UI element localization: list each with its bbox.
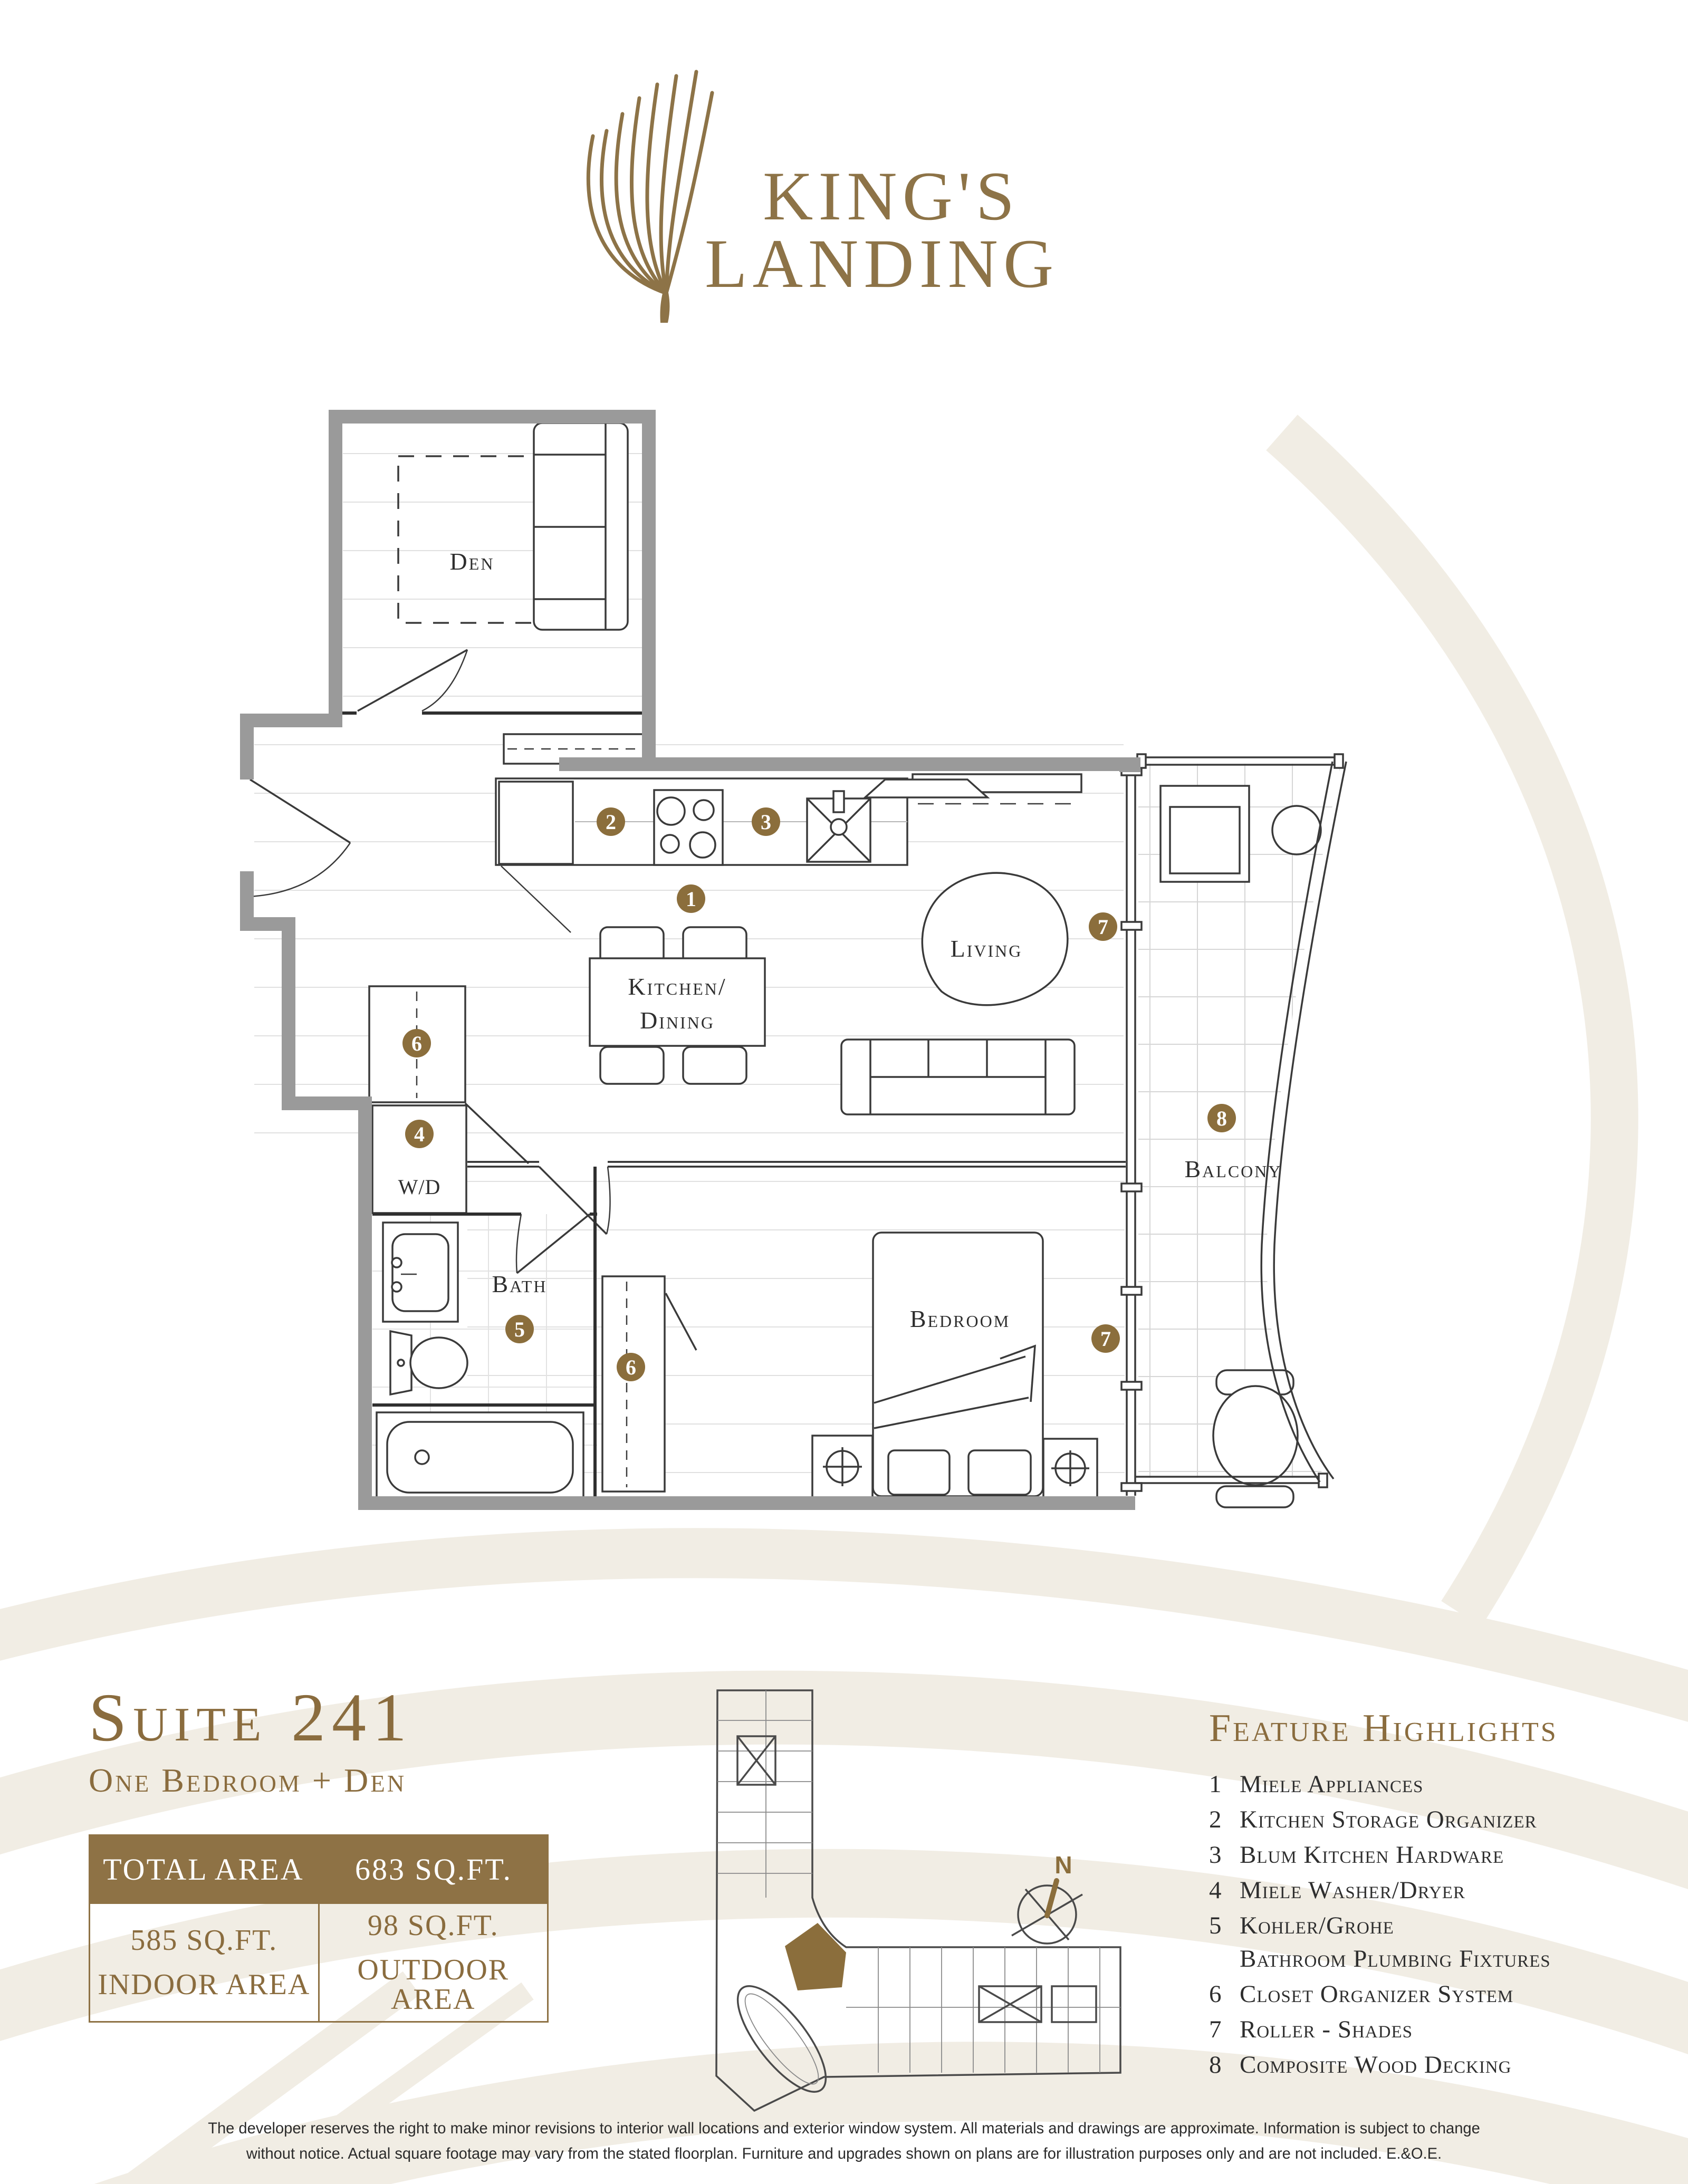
feature-item-number: 3	[1209, 1843, 1240, 1868]
feature-item-number: 6	[1209, 1982, 1240, 2007]
total-area-value: 683 SQ.FT.	[319, 1852, 549, 1887]
balcony-lounge-chair	[1160, 786, 1249, 882]
room-label-balcony: Balcony	[1184, 1156, 1282, 1182]
marker-4-number: 4	[414, 1122, 425, 1146]
nightstand-left	[812, 1436, 872, 1498]
feather-frond-icon	[588, 72, 712, 323]
bed	[873, 1233, 1043, 1496]
bathtub	[377, 1412, 583, 1502]
area-table-body: 585 SQ.FT. INDOOR AREA 98 SQ.FT. OUTDOOR…	[89, 1904, 549, 2023]
feature-item-5: 5Kohler/Grohe	[1209, 1913, 1679, 1938]
feature-item-number: 7	[1209, 2017, 1240, 2042]
feature-item-6: 6Closet Organizer System	[1209, 1982, 1679, 2007]
marker-6-bedroom: 6	[617, 1353, 645, 1381]
feature-item-number-spacer	[1209, 1947, 1240, 1971]
marker-6-closet: 6	[402, 1029, 431, 1057]
indoor-area-cell: 585 SQ.FT. INDOOR AREA	[90, 1904, 320, 2021]
marker-1-number: 1	[686, 887, 696, 911]
area-table-header: TOTAL AREA 683 SQ.FT.	[89, 1834, 549, 1904]
total-area-label: TOTAL AREA	[89, 1852, 319, 1887]
feature-item-2: 2Kitchen Storage Organizer	[1209, 1807, 1679, 1832]
balcony-chaise	[1213, 1370, 1298, 1507]
bath-vanity-sink	[383, 1223, 458, 1322]
outdoor-area-label: OUTDOOR AREA	[320, 1955, 548, 2014]
den-sofa	[534, 423, 628, 630]
feature-item-number: 1	[1209, 1772, 1240, 1797]
compass-north-label: N	[1054, 1851, 1072, 1879]
marker-5: 5	[505, 1315, 534, 1343]
marker-6-closet-number: 6	[411, 1032, 422, 1055]
feature-item-8: 8Composite Wood Decking	[1209, 2053, 1679, 2077]
indoor-area-value: 585 SQ.FT.	[90, 1926, 318, 1955]
marker-1: 1	[677, 884, 705, 913]
marker-4: 4	[405, 1120, 434, 1148]
marker-3-number: 3	[761, 810, 771, 834]
feature-item-4: 4Miele Washer/Dryer	[1209, 1878, 1679, 1903]
suite-subtitle: One Bedroom + Den	[89, 1764, 555, 1797]
marker-8-number: 8	[1216, 1107, 1227, 1130]
feature-item-label: Bathroom Plumbing Fixtures	[1240, 1947, 1551, 1971]
balcony-round-table	[1272, 806, 1321, 854]
floorplan-brochure-page: { "colors": { "gold": "#8b6e3c", "gold_t…	[0, 0, 1688, 2184]
feature-item-number: 5	[1209, 1913, 1240, 1938]
suite-info-panel: Suite 241 One Bedroom + Den TOTAL AREA 6…	[89, 1683, 555, 2023]
disclaimer-line1: The developer reserves the right to make…	[25, 2116, 1663, 2141]
feature-item-5-line2: Bathroom Plumbing Fixtures	[1209, 1947, 1679, 1971]
room-label-den: Den	[450, 548, 495, 575]
marker-7-living-number: 7	[1098, 915, 1108, 939]
floor-plan: 1 2 3 4 5 6 6 7 7 8 Den Kitchen/ Dining …	[240, 406, 1346, 1514]
feature-item-label: Kohler/Grohe	[1240, 1913, 1394, 1938]
suite-title: Suite 241	[89, 1683, 555, 1752]
room-label-living: Living	[951, 935, 1023, 962]
feature-item-number: 4	[1209, 1878, 1240, 1903]
marker-6-bedroom-number: 6	[626, 1355, 636, 1379]
feature-item-label: Blum Kitchen Hardware	[1240, 1843, 1504, 1868]
marker-5-number: 5	[514, 1317, 525, 1341]
marker-7-bedroom: 7	[1091, 1324, 1120, 1353]
brand-name-line1: KING'S	[763, 161, 1020, 231]
marker-8: 8	[1207, 1104, 1236, 1132]
tv-console	[865, 780, 987, 797]
keyplan-suite-highlight	[785, 1923, 846, 1990]
marker-7-bedroom-number: 7	[1100, 1327, 1111, 1351]
area-table: TOTAL AREA 683 SQ.FT. 585 SQ.FT. INDOOR …	[89, 1834, 549, 2023]
feature-item-label: Closet Organizer System	[1240, 1982, 1513, 2007]
marker-7-living: 7	[1089, 912, 1117, 941]
marker-2: 2	[597, 807, 625, 836]
indoor-area-label: INDOOR AREA	[90, 1970, 318, 1999]
feature-item-label: Miele Washer/Dryer	[1240, 1878, 1465, 1903]
room-label-bedroom: Bedroom	[910, 1305, 1010, 1332]
stove	[654, 790, 723, 865]
marker-3: 3	[752, 807, 780, 836]
feature-item-number: 8	[1209, 2053, 1240, 2077]
feature-item-number: 2	[1209, 1807, 1240, 1832]
disclaimer-line2: without notice. Actual square footage ma…	[25, 2141, 1663, 2167]
legal-disclaimer: The developer reserves the right to make…	[25, 2116, 1663, 2167]
outdoor-area-cell: 98 SQ.FT. OUTDOOR AREA	[320, 1904, 548, 2021]
marker-2-number: 2	[606, 810, 616, 834]
feature-highlights-title: Feature Highlights	[1209, 1709, 1679, 1748]
nightstand-right	[1043, 1439, 1097, 1498]
living-sofa	[841, 1040, 1075, 1114]
feature-item-7: 7Roller - Shades	[1209, 2017, 1679, 2042]
feature-item-label: Kitchen Storage Organizer	[1240, 1807, 1537, 1832]
room-label-wd: W/D	[398, 1175, 441, 1199]
feature-list: 1Miele Appliances 2Kitchen Storage Organ…	[1209, 1772, 1679, 2077]
feature-item-label: Roller - Shades	[1240, 2017, 1413, 2042]
feature-highlights-panel: Feature Highlights 1Miele Appliances 2Ki…	[1209, 1709, 1679, 2088]
room-label-bath: Bath	[492, 1271, 548, 1297]
outdoor-area-value: 98 SQ.FT.	[320, 1911, 548, 1940]
room-label-dining: Dining	[640, 1007, 715, 1034]
kitchen-sink	[807, 791, 870, 862]
feature-item-label: Miele Appliances	[1240, 1772, 1423, 1797]
feature-item-label: Composite Wood Decking	[1240, 2053, 1511, 2077]
feature-item-3: 3Blum Kitchen Hardware	[1209, 1843, 1679, 1868]
feature-item-1: 1Miele Appliances	[1209, 1772, 1679, 1797]
room-label-kitchen: Kitchen/	[628, 973, 726, 1000]
brand-name-line2: LANDING	[705, 229, 1059, 299]
